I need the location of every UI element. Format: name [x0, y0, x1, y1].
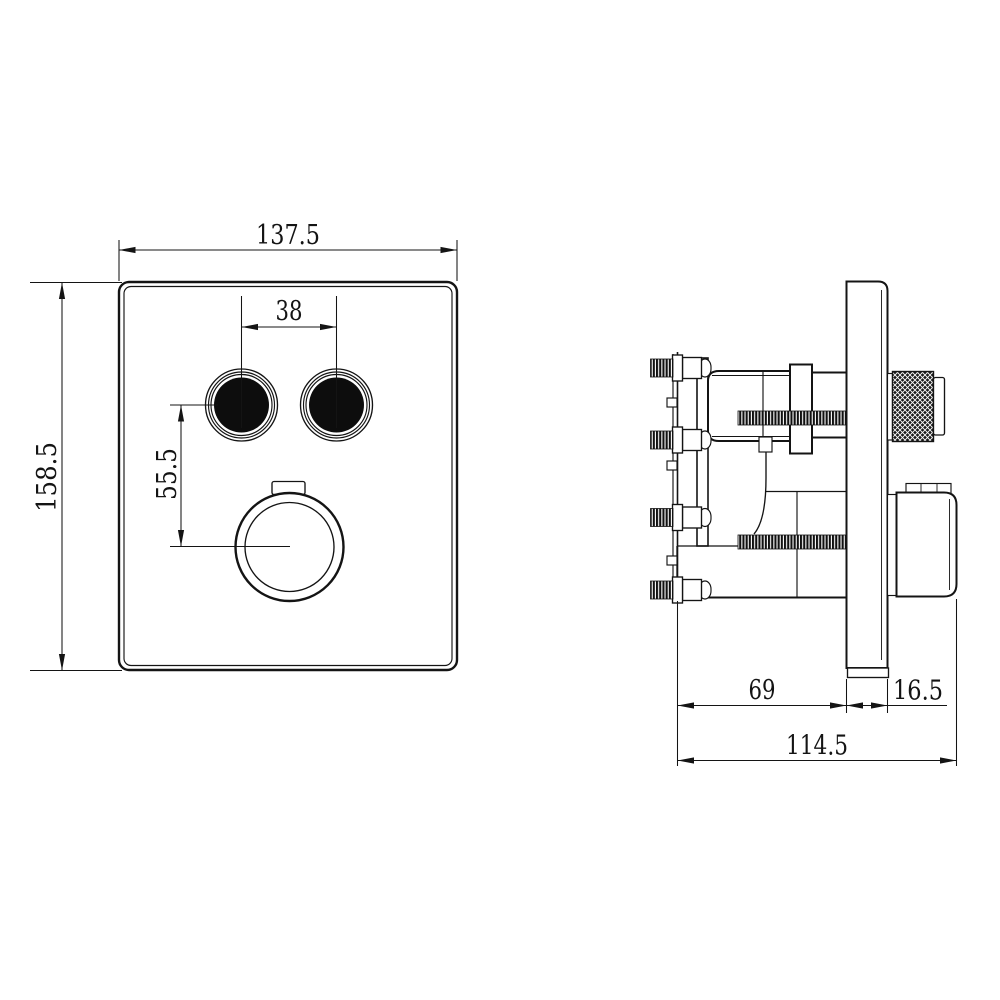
valve-drawing: 137.5 158.5 38 55.5	[0, 0, 1000, 1000]
dim-label-overall-depth: 114.5	[786, 731, 848, 762]
dim-label-plate-thickness: 16.5	[893, 676, 943, 707]
threaded-rod-lower	[738, 535, 847, 549]
technical-drawing-canvas: 137.5 158.5 38 55.5	[0, 0, 1000, 1000]
knob-neck-side	[888, 495, 897, 596]
knurled-button-cap	[934, 378, 945, 436]
bracket-notch	[667, 398, 677, 407]
mounting-screw-1	[651, 355, 712, 381]
bracket-notch	[667, 461, 677, 470]
cartridge-collar	[790, 365, 812, 454]
valve-body	[677, 358, 847, 598]
dim-label-overall-width: 137.5	[256, 220, 320, 251]
wall-plate-foot	[848, 668, 889, 678]
mounting-screw-4	[651, 577, 712, 603]
cartridge-neck	[812, 373, 847, 438]
mounting-bracket	[667, 352, 678, 604]
knurled-button-side	[888, 372, 945, 442]
mounting-screw-3	[651, 505, 712, 531]
temperature-knob	[236, 482, 344, 602]
dim-label-button-spacing: 38	[276, 296, 303, 327]
front-view: 137.5 158.5 38 55.5	[30, 220, 457, 671]
cartridge-housing	[708, 371, 790, 441]
threaded-rod-upper	[738, 411, 847, 425]
dim-label-overall-height: 158.5	[32, 442, 63, 512]
knurled-button-base	[888, 374, 893, 441]
mounting-screw-2	[651, 427, 712, 453]
cartridge-lug	[759, 437, 772, 452]
wall-plate	[847, 282, 889, 678]
body-fillet	[754, 452, 766, 534]
knob-body-side	[897, 493, 957, 597]
dim-label-body-depth: 69	[749, 675, 776, 706]
dim-front-overall-height: 158.5	[30, 283, 122, 671]
dim-label-buttons-to-knob: 55.5	[152, 448, 183, 500]
side-view: 69 16.5 114.5	[651, 282, 957, 767]
bracket-notch	[667, 556, 677, 565]
dim-side-plate-thickness: 16.5	[847, 676, 948, 714]
knurled-button-grip	[893, 372, 934, 442]
dim-front-overall-width: 137.5	[119, 220, 457, 281]
temperature-knob-side	[888, 484, 957, 597]
